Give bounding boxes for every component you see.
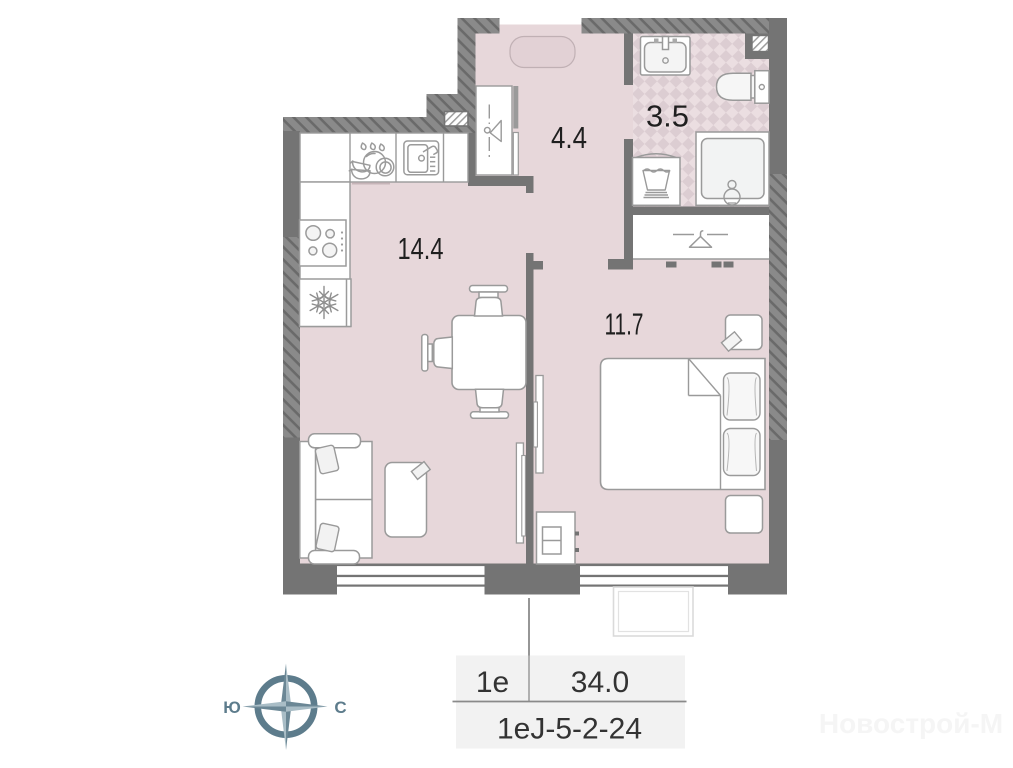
svg-text:14.4: 14.4 (398, 231, 444, 266)
svg-text:4.4: 4.4 (551, 120, 587, 155)
svg-text:34.0: 34.0 (571, 666, 629, 699)
svg-text:3.5: 3.5 (646, 99, 689, 134)
svg-text:С: С (334, 698, 346, 717)
svg-text:Ю: Ю (223, 698, 241, 717)
svg-text:1е: 1е (476, 666, 509, 699)
svg-text:11.7: 11.7 (605, 307, 644, 342)
svg-text:Новострой-М: Новострой-М (819, 708, 1003, 739)
svg-text:1еJ-5-2-24: 1еJ-5-2-24 (497, 713, 642, 746)
